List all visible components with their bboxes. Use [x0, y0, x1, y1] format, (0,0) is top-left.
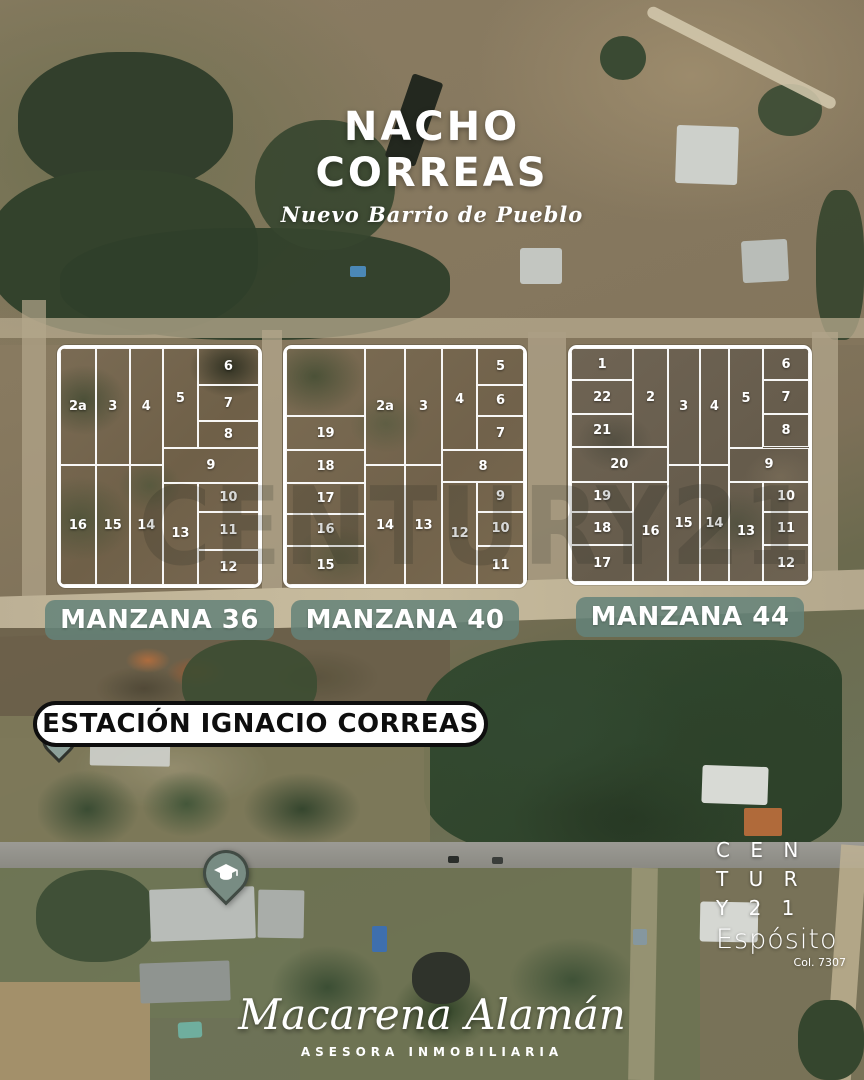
title-line-1: NACHO — [0, 104, 864, 150]
lot-6: 6 — [763, 348, 809, 380]
lot-19: 19 — [286, 416, 365, 450]
lot-number: 5 — [496, 359, 505, 374]
century21-letters-row: Y 2 1 — [716, 894, 850, 923]
lot-number: 8 — [782, 423, 791, 438]
lot-16: 16 — [60, 465, 96, 585]
lot-4: 4 — [130, 348, 163, 465]
lot-number: 5 — [742, 391, 751, 406]
lot-number: 1 — [598, 357, 607, 372]
lot-number: 2a — [69, 399, 87, 414]
road-horizontal-top — [0, 318, 864, 338]
lot-6: 6 — [198, 348, 259, 385]
lot-8: 8 — [198, 421, 259, 448]
title-line-2: CORREAS — [0, 150, 864, 196]
lot-4: 4 — [442, 348, 477, 450]
lot-number: 8 — [224, 427, 233, 442]
century21-office-name: Espósito — [716, 924, 850, 955]
century21-letters-row: C E N — [716, 836, 850, 865]
lot-number: 4 — [142, 399, 151, 414]
lot-2a: 2a — [365, 348, 405, 465]
lot-1: 1 — [571, 348, 633, 380]
lot-15: 15 — [96, 465, 130, 585]
lot-number: 2a — [376, 399, 394, 414]
lot-7: 7 — [198, 385, 259, 421]
lot-number: 15 — [104, 518, 122, 533]
manzana-badge-wrap: MANZANA 40 — [283, 600, 527, 640]
manzana-badge-40: MANZANA 40 — [291, 600, 520, 640]
lot-3: 3 — [668, 348, 700, 465]
lot-21: 21 — [571, 414, 633, 447]
station-label: ESTACIÓN IGNACIO CORREAS — [42, 709, 479, 739]
tree-row — [38, 752, 368, 856]
lot-number: 4 — [710, 399, 719, 414]
century21-branding: C E N T U R Y 2 1 Espósito Col. 7307 — [716, 836, 850, 969]
lot-2a: 2a — [60, 348, 96, 465]
lot-3: 3 — [405, 348, 442, 465]
lot-2: 2 — [633, 348, 667, 447]
lot-unnumbered — [286, 348, 365, 416]
agent-signature: Macarena Alamán ASESORA INMOBILIARIA — [0, 990, 864, 1059]
tree-cluster — [36, 870, 156, 962]
lot-number: 7 — [496, 426, 505, 441]
agent-role: ASESORA INMOBILIARIA — [0, 1045, 864, 1059]
lot-5: 5 — [163, 348, 198, 448]
tree-cluster — [600, 36, 646, 80]
station-label-pill: ESTACIÓN IGNACIO CORREAS — [33, 701, 488, 747]
lot-5: 5 — [477, 348, 524, 385]
building-house — [520, 248, 562, 284]
lot-number: 5 — [176, 391, 185, 406]
flyer-canvas: CENTURY21 NACHO CORREAS Nuevo Barrio de … — [0, 0, 864, 1080]
lot-22: 22 — [571, 380, 633, 414]
parked-car — [448, 856, 459, 863]
swimming-pool — [350, 266, 366, 277]
lot-number: 22 — [593, 390, 611, 405]
parked-car — [492, 857, 503, 864]
lot-4: 4 — [700, 348, 729, 465]
lot-3: 3 — [96, 348, 130, 465]
lot-number: 2 — [646, 390, 655, 405]
lot-number: 6 — [224, 359, 233, 374]
flyer-title: NACHO CORREAS Nuevo Barrio de Pueblo — [0, 104, 864, 227]
manzana-badge-wrap: MANZANA 36 — [57, 600, 262, 640]
lot-number: 3 — [108, 399, 117, 414]
lot-number: 7 — [782, 390, 791, 405]
lot-6: 6 — [477, 385, 524, 416]
century21-letters-row: T U R — [716, 865, 850, 894]
building-house — [701, 765, 768, 805]
agent-name: Macarena Alamán — [0, 990, 864, 1039]
road-vertical-right — [812, 332, 838, 602]
lot-7: 7 — [763, 380, 809, 414]
building-house — [741, 239, 789, 283]
lot-5: 5 — [729, 348, 763, 448]
road-vertical-left — [22, 300, 46, 612]
graduation-cap-icon — [213, 863, 239, 883]
lot-number: 19 — [316, 426, 334, 441]
manzana-badge-36: MANZANA 36 — [45, 600, 274, 640]
lot-7: 7 — [477, 416, 524, 450]
title-subtitle: Nuevo Barrio de Pueblo — [0, 202, 864, 227]
lot-8: 8 — [763, 414, 809, 447]
manzana-badge-44: MANZANA 44 — [576, 597, 805, 637]
lot-number: 4 — [455, 392, 464, 407]
lot-number: 3 — [679, 399, 688, 414]
century21-license: Col. 7307 — [716, 956, 850, 969]
lot-number: 16 — [69, 518, 87, 533]
century21-watermark: CENTURY21 — [138, 463, 738, 589]
swimming-pool — [372, 926, 387, 952]
lot-number: 6 — [496, 393, 505, 408]
building-shed — [149, 886, 256, 942]
lot-number: 3 — [419, 399, 428, 414]
lot-number: 6 — [782, 357, 791, 372]
manzana-badge-wrap: MANZANA 44 — [568, 597, 812, 637]
lot-number: 21 — [593, 423, 611, 438]
building-orange-roof — [744, 808, 782, 836]
lot-number: 7 — [224, 396, 233, 411]
